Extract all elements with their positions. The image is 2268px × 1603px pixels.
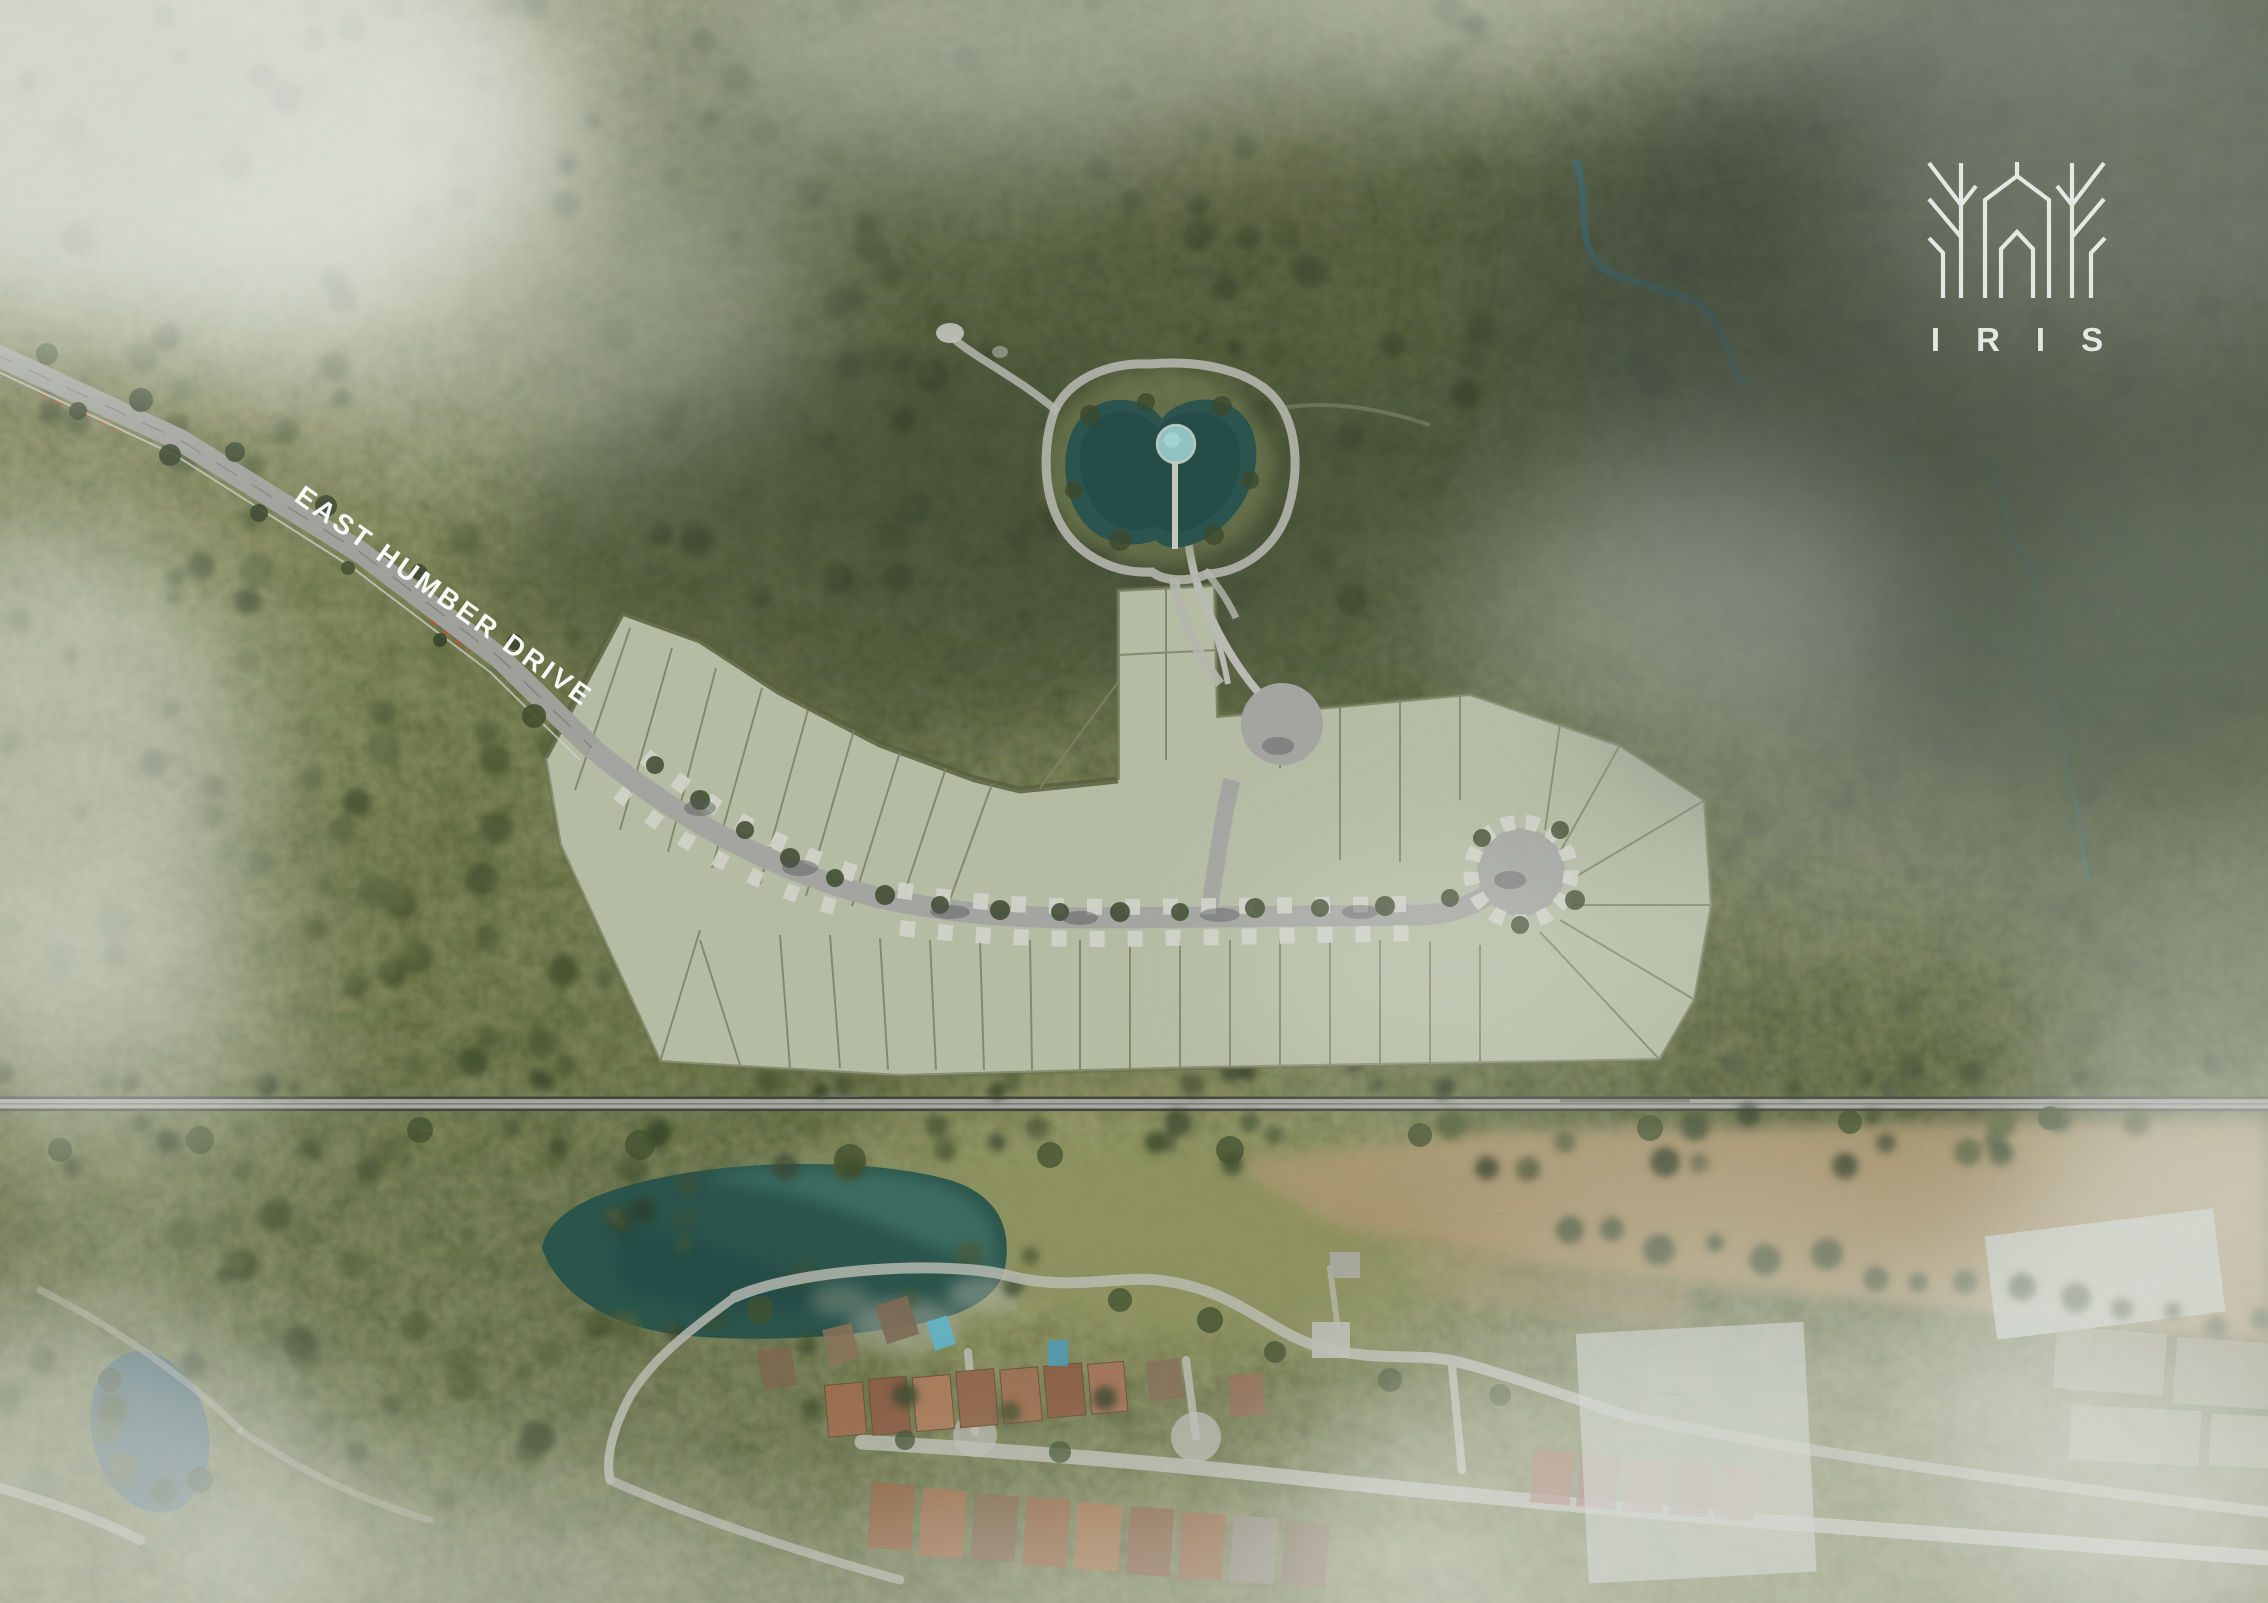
svg-text:IRIS: IRIS bbox=[1931, 321, 2139, 358]
